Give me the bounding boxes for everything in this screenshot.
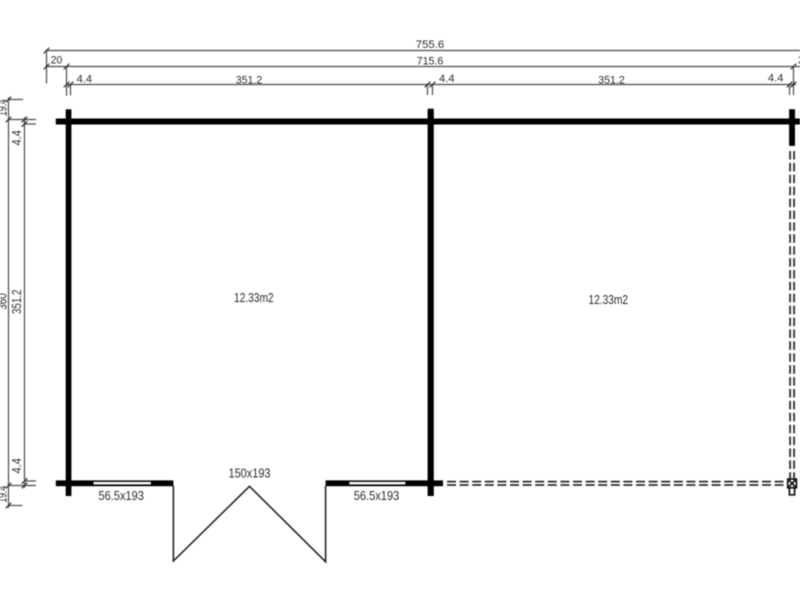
svg-text:12.33m2: 12.33m2: [234, 290, 274, 305]
svg-text:20: 20: [51, 55, 63, 67]
svg-text:12.33m2: 12.33m2: [589, 292, 629, 307]
svg-text:4.4: 4.4: [77, 73, 93, 85]
svg-text:4.4: 4.4: [10, 458, 24, 474]
svg-text:150x193: 150x193: [229, 465, 271, 480]
svg-text:715.6: 715.6: [417, 55, 444, 67]
svg-text:351.2: 351.2: [598, 74, 625, 86]
svg-text:19.4: 19.4: [0, 486, 10, 503]
svg-text:56.5x193: 56.5x193: [354, 488, 400, 503]
svg-text:351.2: 351.2: [10, 290, 24, 315]
svg-text:755.6: 755.6: [416, 39, 445, 51]
svg-text:56.5x193: 56.5x193: [98, 488, 144, 503]
svg-text:19.4: 19.4: [0, 99, 10, 116]
svg-text:360: 360: [0, 293, 10, 310]
svg-text:351.2: 351.2: [236, 74, 263, 86]
svg-text:4.4: 4.4: [10, 130, 24, 146]
svg-text:4.4: 4.4: [439, 73, 455, 85]
svg-text:4.4: 4.4: [768, 72, 784, 84]
